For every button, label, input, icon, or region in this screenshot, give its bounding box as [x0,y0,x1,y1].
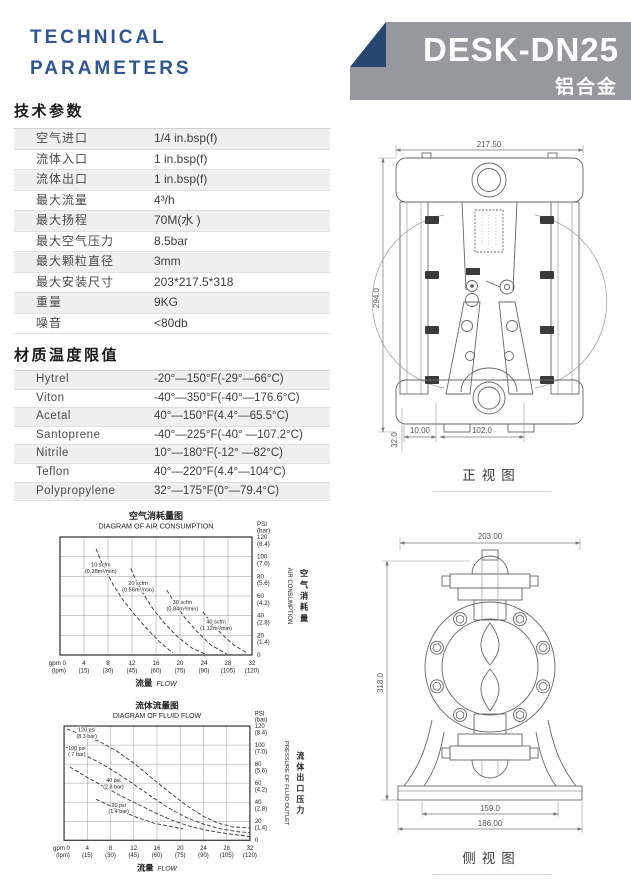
y-tick-bar: (4.2) [255,788,267,794]
series-label: 20 psi [111,803,125,809]
material-label: Hytrel [36,371,69,389]
bolt-hex [456,615,463,623]
x-tick-gpm: 24 [201,660,208,667]
y-tick-psi: 60 [255,781,262,787]
x-tick-lpm: (45) [126,668,137,675]
x-tick-lpm: (90) [198,853,209,859]
front-dim-width: 217.50 [477,140,502,149]
series-label: (0.28m³/min) [85,569,117,575]
materials-heading: 材质温度限值 [14,344,336,365]
series-label: (8.3 bar) [76,734,97,740]
y-tick-psi: 80 [255,762,262,768]
spec-value: <80db [154,314,188,334]
side-caption-underline [433,874,551,875]
bolt-circle [430,641,443,654]
x-tick-lpm: (105) [221,668,235,675]
bolt-hex [456,711,463,719]
spec-row: 最大安装尺寸203*217.5*318 [14,273,330,294]
material-label: Teflon [36,464,70,482]
spec-value: 8.5bar [154,232,188,252]
spec-value: 70M(水 ) [154,211,201,231]
front-dim-port-span: 102.0 [472,426,493,435]
x-tick-lpm: (30) [105,853,116,859]
spec-label: 空气进口 [36,129,88,149]
material-row: Viton-40°—350°F(-40°—176.6°C) [14,390,330,409]
y-axis-label-en: PRESSURE OF FLUID OUTLET [283,741,289,826]
front-pump-body [372,153,607,432]
x-tick-lpm: (45) [128,853,139,859]
spec-row: 最大空气压力8.5bar [14,232,330,253]
spec-value: 9KG [154,293,178,313]
bolt-hex [539,682,547,690]
material-value: -20°—150°F(-29°—66°C) [154,371,284,389]
series-label: 10 scfm [91,563,111,569]
material-row: Acetal40°—150°F(4.4°—65.5°C) [14,408,330,427]
series-label: (1.4 bar) [108,809,129,815]
series-curve [67,729,250,828]
spec-label: 流体出口 [36,170,88,190]
x-tick-gpm: gpm 0 [53,846,70,852]
material-value: -40°—225°F(-40° —107.2°C) [154,427,303,445]
series-label: 40 psi [106,778,120,784]
spec-label: 重量 [36,293,62,313]
bolt-circle [430,680,443,693]
series-label: 20 scfm [128,581,148,587]
material-value: 40°—150°F(4.4°—65.5°C) [154,408,289,426]
spec-label: 噪音 [36,314,62,334]
side-dim-outer-base: 186.00 [478,819,503,828]
x-tick-lpm: (60) [152,853,163,859]
side-dim-width: 203.00 [478,532,503,541]
bolt-circle [537,680,550,693]
bolt-hex [539,644,547,652]
spec-row: 最大颗粒直径3mm [14,252,330,273]
x-tick-gpm: 12 [129,660,136,667]
spec-label: 最大安装尺寸 [36,273,114,293]
y-tick-bar: (7.0) [255,750,267,756]
page: { "header": { "title_line1": "TECHNICAL"… [0,0,631,855]
front-caption-underline [433,491,551,492]
x-tick-gpm: 20 [177,846,184,852]
bolt-hex [516,711,523,719]
side-dim-height: 318.0 [376,672,385,693]
material-value: 40°—220°F(4.4°—104°C) [154,464,286,482]
front-view-drawing: 217.50 294.0 32.0 10.00 102.0 [366,140,616,460]
x-tick-gpm: 24 [200,846,207,852]
spec-row: 噪音<80db [14,314,330,335]
page-title-line2: PARAMETERS [30,53,192,84]
series-label: (1.12m³/min) [200,626,232,632]
x-unit-lpm: (lpm) [52,668,66,675]
spec-row: 流体出口1 in.bsp(f) [14,170,330,191]
material-label: Acetal [36,408,71,426]
spec-value: 1 in.bsp(f) [154,150,207,170]
material-value: 32°—175°F(0°—79.4°C) [154,483,279,501]
y-tick-bar: (8.4) [257,541,270,548]
x-axis-label: 流量FLOW [137,862,177,872]
y-tick-bar: (1.4) [257,639,270,646]
spec-value: 203*217.5*318 [154,273,233,293]
x-tick-gpm: 28 [223,846,230,852]
spec-label: 最大流量 [36,191,88,211]
y-tick-psi: 40 [255,800,262,806]
x-tick-gpm: 8 [106,660,110,667]
x-tick-lpm: (75) [175,853,186,859]
spec-row: 最大扬程70M(水 ) [14,211,330,232]
spec-value: 1/4 in.bsp(f) [154,129,217,149]
page-title-line1: TECHNICAL [30,22,192,53]
y-axis-label-zh: 流体出口压力 [296,751,304,815]
x-tick-gpm: 32 [249,660,256,667]
front-dim-base-height: 32.0 [390,432,399,448]
material-label: Viton [36,390,65,408]
specs-heading: 技术参数 [14,100,336,121]
front-dim-offset: 10.00 [410,426,431,435]
x-axis-label: 流量FLOW [135,678,178,688]
series-label: (0.56m³/min) [122,588,154,594]
y-unit-primary: PSI [255,712,265,718]
bolt-hex [433,682,441,690]
y-tick-psi: 120 [255,724,266,730]
x-tick-gpm: gpm 0 [49,660,67,667]
bolt-hex [516,615,523,623]
material-label: Santoprene [36,427,100,445]
specs-table: 空气进口1/4 in.bsp(f)流体入口1 in.bsp(f)流体出口1 in… [14,128,330,334]
y-tick-bar: (8.4) [255,731,267,737]
bolt-hex [433,644,441,652]
x-tick-gpm: 20 [177,660,184,667]
material-label: Polypropylene [36,483,115,501]
chart-title-en: DIAGRAM OF AIR CONSUMPTION [98,522,213,531]
material-row: Polypropylene32°—175°F(0°—79.4°C) [14,483,330,502]
series-label: ( 7 bar) [68,752,86,758]
y-axis-label-en: AIR CONSUMPTION [286,568,292,625]
spec-label: 流体入口 [36,150,88,170]
x-tick-lpm: (75) [174,668,185,675]
x-unit-lpm: (lpm) [56,853,70,859]
spec-value: 1 in.bsp(f) [154,170,207,190]
left-column: 技术参数 空气进口1/4 in.bsp(f)流体入口1 in.bsp(f)流体出… [14,100,336,879]
x-tick-gpm: 4 [82,660,86,667]
x-tick-lpm: (120) [245,668,259,675]
spec-label: 最大颗粒直径 [36,252,114,272]
spec-label: 最大空气压力 [36,232,114,252]
x-tick-gpm: 12 [130,846,137,852]
side-pump-body [398,550,582,800]
y-tick-bar: (2.8) [257,620,270,627]
x-tick-lpm: (105) [220,853,234,859]
series-label: 40 scfm [206,620,226,626]
material-row: Santoprene-40°—225°F(-40° —107.2°C) [14,427,330,446]
materials-table: Hytrel-20°—150°F(-29°—66°C)Viton-40°—350… [14,370,330,501]
x-tick-lpm: (30) [102,668,113,675]
y-tick-bar: (1.4) [255,826,267,832]
y-tick-psi: 20 [255,819,262,825]
y-tick-psi: 100 [255,743,266,749]
x-tick-gpm: 28 [225,660,232,667]
chart-title-zh: 空气消耗量图 [129,510,183,521]
page-title: TECHNICAL PARAMETERS [30,22,192,84]
x-tick-lpm: (15) [82,853,93,859]
y-tick-bar: (2.8) [255,807,267,813]
y-axis-label-zh: 空气消耗量 [299,568,309,623]
bolt-circle [537,641,550,654]
y-tick-bar: (4.2) [257,600,270,607]
side-view-drawing: 203.00 318.0 159.0 186.00 [370,528,610,843]
series-label: 100 psi [68,746,85,752]
x-tick-lpm: (15) [78,668,89,675]
spec-row: 重量9KG [14,293,330,314]
x-tick-gpm: 4 [86,846,90,852]
side-dim-inner-base: 159.0 [480,804,501,813]
chart-title-en: DIAGRAM OF FLUID FLOW [113,713,202,720]
spec-value: 4³/h [154,191,175,211]
series-label: 120 psi [78,728,95,734]
side-dimensions: 203.00 318.0 159.0 186.00 [376,532,582,833]
y-tick-bar: (5.6) [257,580,270,587]
x-tick-gpm: 32 [247,846,254,852]
x-tick-gpm: 8 [109,846,113,852]
x-tick-lpm: (120) [243,853,257,859]
spec-label: 最大扬程 [36,211,88,231]
material-row: Hytrel-20°—150°F(-29°—66°C) [14,371,330,390]
y-unit-secondary: (bar) [255,718,268,724]
series-curve [203,612,247,653]
spec-value: 3mm [154,252,181,272]
series-label: 30 scfm [173,600,193,606]
spec-row: 空气进口1/4 in.bsp(f) [14,129,330,150]
side-clamp-bolts [430,613,549,722]
front-bolts [425,216,554,384]
spec-row: 流体入口1 in.bsp(f) [14,150,330,171]
material-row: Teflon40°—220°F(4.4°—104°C) [14,464,330,483]
material-row: Nitrile10°—180°F(-12° —82°C) [14,445,330,464]
y-tick-psi: 0 [257,652,261,659]
x-tick-lpm: (90) [198,668,209,675]
y-tick-psi: 0 [255,838,259,844]
series-label: (2.8 bar) [103,785,124,791]
side-view-caption: 侧视图 [352,847,631,867]
y-tick-bar: (5.6) [255,769,267,775]
material-label: Nitrile [36,445,69,463]
front-dim-height: 294.0 [372,287,381,308]
spec-row: 最大流量4³/h [14,191,330,212]
x-tick-gpm: 16 [154,846,161,852]
fluid-flow-chart: 流体流量图DIAGRAM OF FLUID FLOWPSI(bar)120(8.… [32,697,342,879]
front-view-caption: 正视图 [352,464,631,484]
right-column: 217.50 294.0 32.0 10.00 102.0 [352,0,631,875]
y-tick-bar: (7.0) [257,561,270,568]
material-value: -40°—350°F(-40°—176.6°C) [154,390,300,408]
series-curve [66,747,250,833]
x-tick-lpm: (60) [150,668,161,675]
material-value: 10°—180°F(-12° —82°C) [154,445,283,463]
chart-title-zh: 流体流量图 [135,700,179,711]
air-consumption-chart: 空气消耗量图DIAGRAM OF AIR CONSUMPTIONPSI(bar)… [32,507,342,695]
x-tick-gpm: 16 [153,660,160,667]
series-label: (0.84m³/min) [167,606,199,612]
